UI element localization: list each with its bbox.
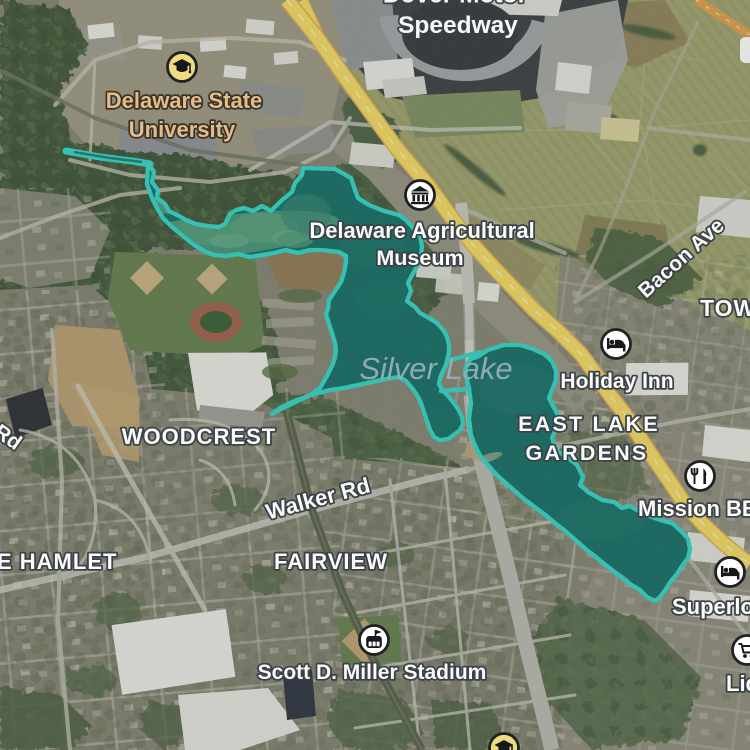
svg-text:Dover Motor: Dover Motor xyxy=(383,0,528,9)
svg-text:TOWN: TOWN xyxy=(700,295,750,321)
svg-text:WOODCREST: WOODCREST xyxy=(122,424,276,449)
svg-text:FAIRVIEW: FAIRVIEW xyxy=(274,549,388,574)
svg-text:Delaware Agricultural: Delaware Agricultural xyxy=(309,218,534,243)
svg-text:EAST LAKE: EAST LAKE xyxy=(518,412,660,436)
svg-text:Delaware State: Delaware State xyxy=(106,88,263,113)
svg-text:Speedway: Speedway xyxy=(398,12,518,39)
svg-text:Museum: Museum xyxy=(376,246,463,270)
svg-text:GARDENS: GARDENS xyxy=(526,441,649,465)
svg-text:Scott D. Miller Stadium: Scott D. Miller Stadium xyxy=(258,661,487,684)
svg-text:University: University xyxy=(129,117,236,142)
svg-text:Silver Lake: Silver Lake xyxy=(359,351,512,386)
svg-text:Superlodge: Superlodge xyxy=(672,594,750,619)
svg-text:Liquors: Liquors xyxy=(726,671,750,696)
svg-text:Mission BBQ: Mission BBQ xyxy=(638,496,750,521)
svg-text:E HAMLET: E HAMLET xyxy=(0,549,117,574)
svg-text:Holiday Inn: Holiday Inn xyxy=(560,370,673,393)
